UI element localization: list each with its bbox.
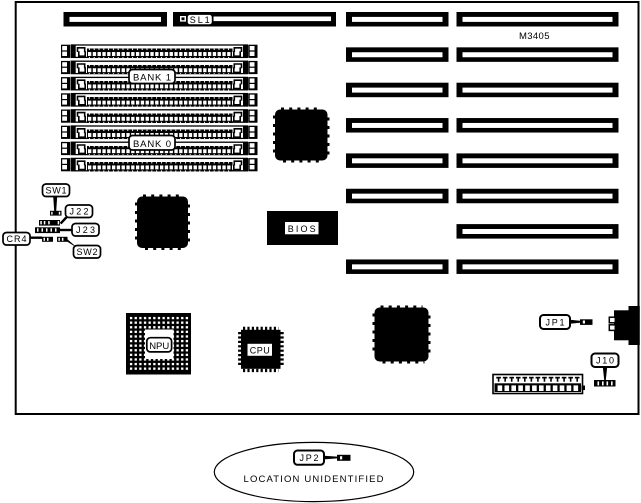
svg-text:CPU: CPU — [250, 346, 270, 356]
svg-text:BANK 0: BANK 0 — [133, 139, 171, 150]
svg-text:BIOS: BIOS — [288, 224, 316, 234]
svg-text:BANK 1: BANK 1 — [133, 73, 171, 84]
svg-text:J23: J23 — [76, 225, 95, 235]
svg-text:SL1: SL1 — [190, 15, 210, 25]
svg-text:JP2: JP2 — [300, 453, 319, 463]
svg-text:CR4: CR4 — [7, 234, 27, 244]
svg-text:M3405: M3405 — [519, 31, 550, 42]
svg-text:SW2: SW2 — [77, 247, 98, 257]
svg-text:NPU: NPU — [149, 341, 169, 352]
svg-text:JP1: JP1 — [546, 317, 565, 327]
svg-text:LOCATION UNIDENTIFIED: LOCATION UNIDENTIFIED — [244, 474, 384, 485]
svg-text:J10: J10 — [596, 356, 614, 366]
svg-text:J22: J22 — [70, 207, 89, 217]
svg-text:SW1: SW1 — [46, 186, 67, 196]
